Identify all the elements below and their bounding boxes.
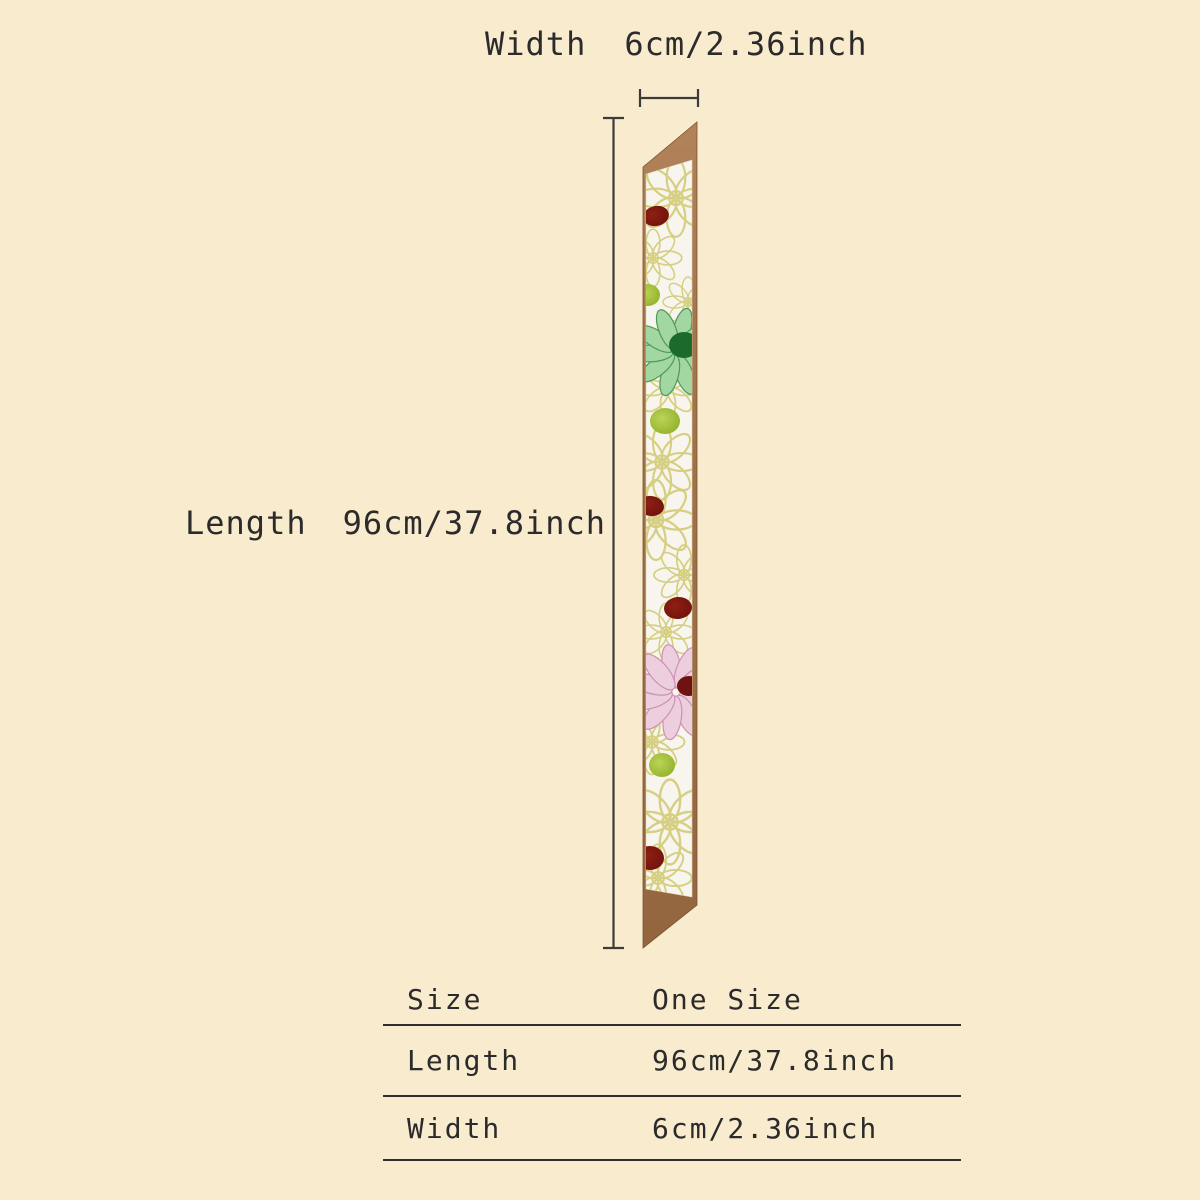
length-dimension-label: Length <box>185 504 307 542</box>
size-table-row: Size One Size <box>383 974 961 1026</box>
size-table: Size One Size Length 96cm/37.8inch Width… <box>383 974 961 1161</box>
size-table-value: 6cm/2.36inch <box>652 1112 961 1145</box>
size-table-row: Width 6cm/2.36inch <box>383 1097 961 1161</box>
size-table-label: Length <box>407 1044 652 1077</box>
size-chart-page: Width 6cm/2.36inch Length 96cm/37.8inch … <box>0 0 1200 1200</box>
width-dimension-label: Width <box>485 25 586 63</box>
length-dimension-value: 96cm/37.8inch <box>343 504 606 542</box>
size-table-value: 96cm/37.8inch <box>652 1044 961 1077</box>
size-table-label: Width <box>407 1112 652 1145</box>
width-dimension: Width 6cm/2.36inch <box>485 25 868 63</box>
width-dimension-value: 6cm/2.36inch <box>624 25 867 63</box>
size-table-value: One Size <box>652 983 961 1016</box>
size-table-label: Size <box>407 983 652 1016</box>
width-measure-bracket <box>640 89 698 107</box>
length-measure-line <box>603 118 624 948</box>
length-dimension: Length 96cm/37.8inch <box>185 504 606 542</box>
size-table-row: Length 96cm/37.8inch <box>383 1026 961 1097</box>
